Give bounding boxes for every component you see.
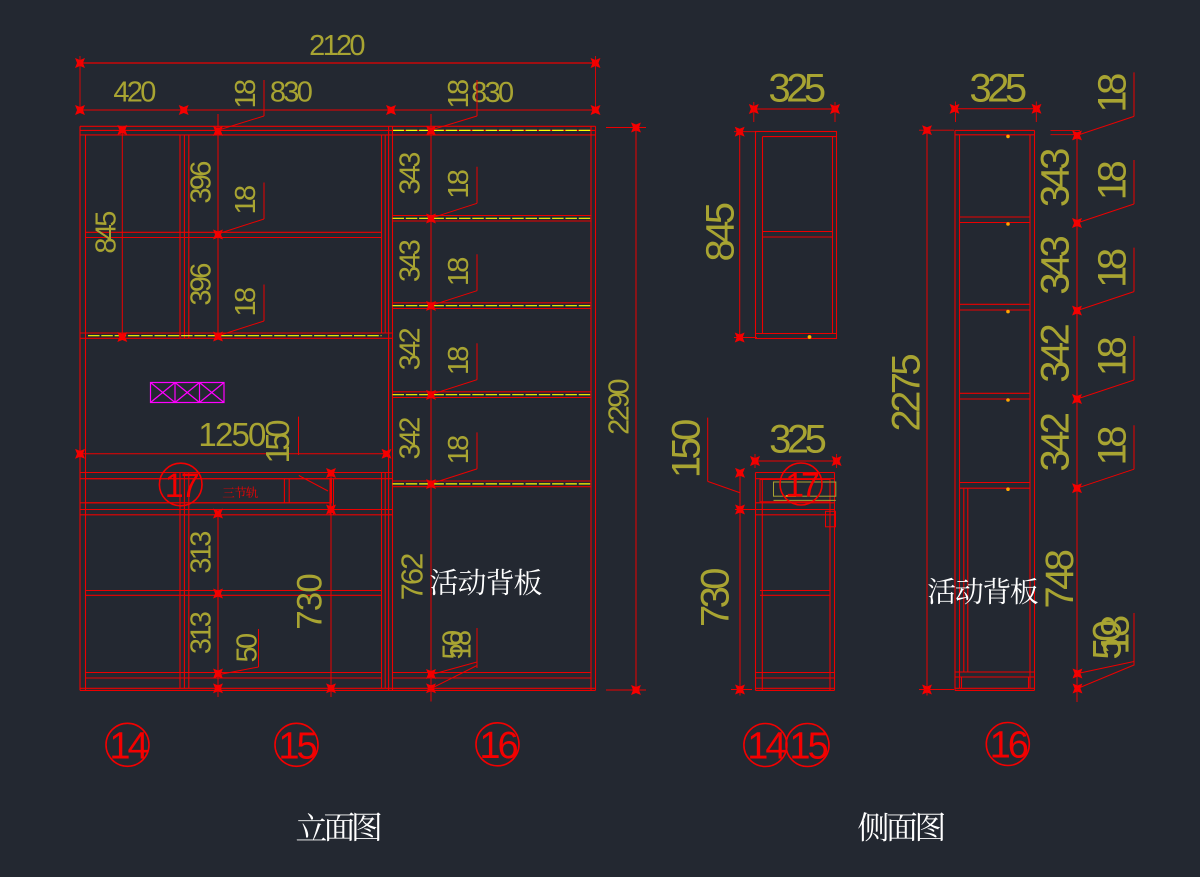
svg-text:18: 18 — [230, 186, 262, 214]
svg-text:343: 343 — [1033, 149, 1077, 207]
svg-text:18: 18 — [1094, 616, 1138, 655]
svg-text:342: 342 — [1033, 413, 1077, 471]
svg-text:17: 17 — [785, 467, 819, 505]
svg-text:845: 845 — [91, 212, 123, 254]
svg-text:313: 313 — [186, 532, 218, 574]
svg-text:1250: 1250 — [198, 416, 266, 453]
svg-text:18: 18 — [230, 288, 262, 316]
svg-text:16: 16 — [990, 725, 1028, 767]
svg-text:18: 18 — [443, 436, 475, 464]
svg-text:18: 18 — [443, 258, 475, 286]
svg-text:18: 18 — [443, 170, 475, 198]
svg-text:18: 18 — [1091, 427, 1135, 466]
svg-text:18: 18 — [443, 347, 475, 375]
svg-text:18: 18 — [1091, 74, 1135, 113]
svg-text:748: 748 — [1038, 550, 1082, 608]
svg-text:150: 150 — [259, 420, 296, 464]
svg-text:343: 343 — [395, 240, 427, 282]
svg-text:325: 325 — [769, 417, 825, 461]
svg-text:18: 18 — [230, 80, 262, 108]
svg-text:18: 18 — [1091, 338, 1135, 377]
svg-text:14: 14 — [747, 726, 786, 768]
svg-text:396: 396 — [186, 162, 218, 204]
svg-text:50: 50 — [232, 634, 264, 662]
svg-text:420: 420 — [113, 77, 155, 109]
svg-text:325: 325 — [768, 66, 824, 110]
svg-text:343: 343 — [1033, 236, 1077, 294]
svg-text:150: 150 — [665, 420, 709, 478]
svg-text:730: 730 — [694, 569, 738, 627]
svg-text:342: 342 — [1033, 324, 1077, 382]
svg-text:15: 15 — [278, 725, 316, 767]
svg-text:18: 18 — [1091, 249, 1135, 288]
svg-text:343: 343 — [395, 153, 427, 195]
svg-text:2290: 2290 — [604, 380, 636, 435]
svg-text:325: 325 — [969, 66, 1025, 110]
svg-text:313: 313 — [186, 612, 218, 654]
svg-text:2275: 2275 — [884, 355, 928, 432]
svg-text:17: 17 — [165, 467, 199, 505]
svg-text:2120: 2120 — [309, 30, 364, 62]
svg-text:342: 342 — [395, 418, 427, 460]
svg-text:730: 730 — [291, 574, 330, 630]
svg-text:845: 845 — [698, 203, 742, 261]
svg-text:16: 16 — [479, 725, 517, 767]
svg-text:830: 830 — [270, 77, 312, 109]
svg-text:18: 18 — [1091, 162, 1135, 201]
svg-text:762: 762 — [395, 554, 430, 600]
svg-text:342: 342 — [395, 328, 427, 370]
svg-text:18: 18 — [443, 80, 475, 108]
svg-text:18: 18 — [446, 631, 478, 659]
svg-text:14: 14 — [109, 725, 148, 767]
svg-text:396: 396 — [186, 264, 218, 306]
svg-text:15: 15 — [789, 726, 827, 768]
